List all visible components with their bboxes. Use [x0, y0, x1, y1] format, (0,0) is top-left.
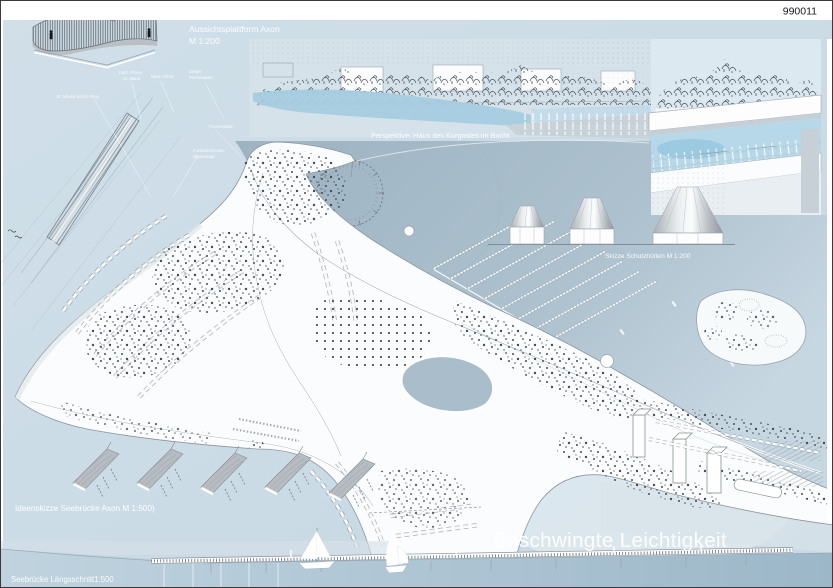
top-margin [1, 1, 833, 20]
section-caption: Seebrücke Längsschnitt1:500 [11, 575, 114, 584]
annotation-2-line2: Promenaden [189, 75, 214, 80]
annotation-4-line1: Promenaden [209, 124, 234, 129]
axon-platform-caption-line2: M 1:200 [189, 36, 220, 46]
right-margin [827, 39, 833, 521]
axon-platform-caption-line1: Aussichtsplattform Axon [189, 24, 280, 34]
board-title: Beschwingte Leichtigkeit [493, 529, 727, 552]
presentation-board: Aussichtsplattform Axon M 1:200 Kath. Pf… [0, 0, 833, 588]
project-number: 990011 [783, 6, 817, 18]
annotation-5-line1: Funktionsknoten [193, 148, 225, 153]
pier-axon-caption: Ideenskizze Seebrücke Axon M 1:500) [15, 504, 155, 513]
annotation-5-line2: Wasserbad [193, 154, 215, 159]
annotation-0-line1: Kath. Pfarre [119, 70, 143, 75]
annotation-3-line1: St. Nikolai Kirche Ring [56, 94, 99, 99]
annotation-0-line2: St. Maria [123, 76, 141, 81]
huts-caption: Skizze Schutzhütten M 1:200 [605, 253, 691, 260]
annotation-2-line1: Berger [189, 69, 202, 74]
annotation-1-line1: Neue Fähre [151, 74, 174, 79]
perspective-caption: Perspektive: Haus des Kurgastes im Bucht [371, 131, 509, 140]
